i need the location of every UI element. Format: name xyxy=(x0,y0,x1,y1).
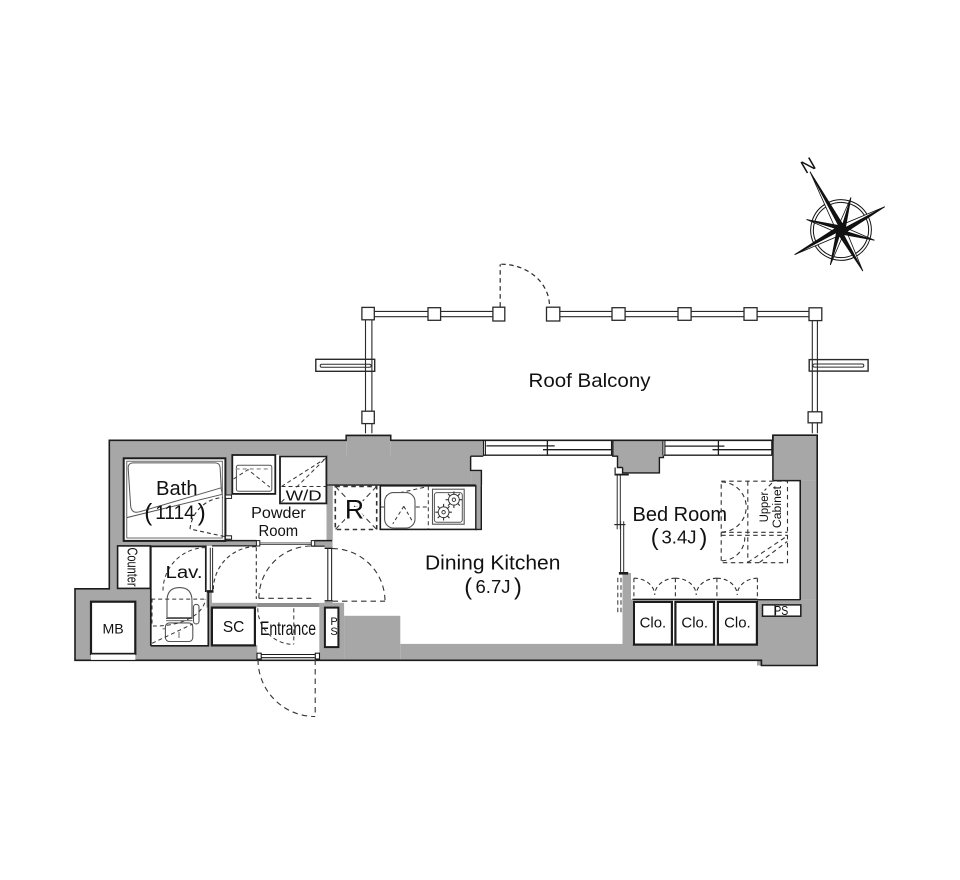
svg-text:Clo.: Clo. xyxy=(640,615,667,632)
svg-text:Counter: Counter xyxy=(124,548,140,587)
svg-text:Roof Balcony: Roof Balcony xyxy=(529,370,651,392)
svg-text:Dining Kitchen: Dining Kitchen xyxy=(425,552,560,575)
svg-text:Powder: Powder xyxy=(251,505,306,522)
svg-text:PS: PS xyxy=(774,604,788,618)
svg-text:Bed Room: Bed Room xyxy=(633,504,728,526)
svg-text:Lav.: Lav. xyxy=(166,562,203,582)
svg-text:Entrance: Entrance xyxy=(260,618,316,640)
svg-text:MB: MB xyxy=(103,620,124,636)
svg-text:W/D: W/D xyxy=(286,488,322,505)
svg-text:Bath: Bath xyxy=(156,478,198,500)
svg-text:Cabinet: Cabinet xyxy=(770,485,784,528)
svg-text:SC: SC xyxy=(223,619,245,636)
svg-text:Clo.: Clo. xyxy=(681,615,708,632)
svg-text:Clo.: Clo. xyxy=(724,615,751,632)
svg-text:S: S xyxy=(330,626,337,638)
svg-text:Room: Room xyxy=(259,523,299,540)
svg-text:R: R xyxy=(345,495,364,525)
svg-text:Upper: Upper xyxy=(757,492,771,523)
